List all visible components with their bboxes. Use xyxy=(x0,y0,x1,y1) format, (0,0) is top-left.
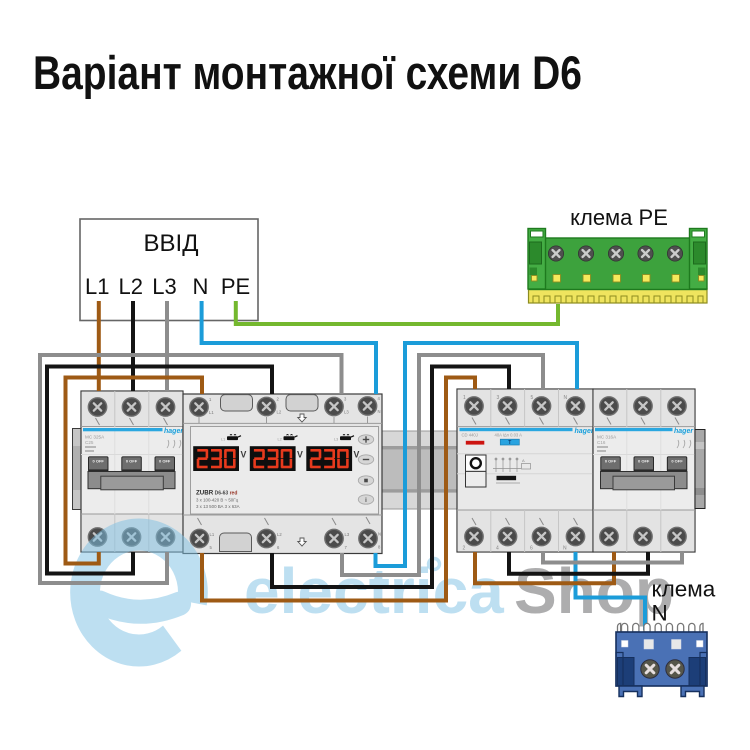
svg-text:L2: L2 xyxy=(118,274,142,299)
svg-text:L2: L2 xyxy=(278,438,282,442)
svg-text:N: N xyxy=(193,274,209,299)
svg-text:hager: hager xyxy=(674,428,694,435)
svg-text:N: N xyxy=(564,395,568,401)
svg-text:L2: L2 xyxy=(277,410,282,415)
svg-text:C16: C16 xyxy=(597,440,606,445)
svg-text:MC 316A: MC 316A xyxy=(597,434,617,439)
svg-text:V: V xyxy=(241,450,247,460)
svg-text:3 x 100-420 В ~ 50Гц: 3 x 100-420 В ~ 50Гц xyxy=(196,498,239,503)
svg-text:клема PE: клема PE xyxy=(570,205,668,230)
svg-text:L3: L3 xyxy=(345,532,350,537)
svg-text:L2: L2 xyxy=(277,532,282,537)
svg-text:L3: L3 xyxy=(334,438,338,442)
svg-text:L1: L1 xyxy=(85,274,109,299)
svg-text:3: 3 xyxy=(497,395,500,401)
svg-text:hager: hager xyxy=(164,428,184,435)
svg-text:hager: hager xyxy=(575,428,595,435)
svg-text:PE: PE xyxy=(221,274,250,299)
svg-text:L3: L3 xyxy=(152,274,176,299)
svg-text:V: V xyxy=(297,450,303,460)
svg-text:N: N xyxy=(652,601,668,626)
svg-text:A: A xyxy=(522,458,525,463)
svg-text:L3: L3 xyxy=(344,410,349,415)
svg-text:ZUBR D6-63 red: ZUBR D6-63 red xyxy=(196,490,237,497)
svg-text:1: 1 xyxy=(463,395,466,401)
svg-text:C25: C25 xyxy=(85,440,94,445)
svg-text:5: 5 xyxy=(531,395,534,401)
svg-text:L1: L1 xyxy=(221,438,225,442)
svg-text:T: T xyxy=(508,440,511,446)
svg-text:40A I∆n 0.03 A: 40A I∆n 0.03 A xyxy=(495,433,523,438)
svg-text:MC 325A: MC 325A xyxy=(85,434,105,439)
svg-text:L1: L1 xyxy=(210,532,215,537)
svg-text:2: 2 xyxy=(463,546,466,552)
svg-text:клема: клема xyxy=(652,577,716,602)
svg-text:N: N xyxy=(378,409,381,414)
svg-text:N: N xyxy=(378,532,381,537)
svg-text:ВВІД: ВВІД xyxy=(144,230,199,257)
svg-text:N: N xyxy=(563,546,567,552)
svg-text:3 x 13 500 ВА 3 x 63А: 3 x 13 500 ВА 3 x 63А xyxy=(196,504,240,509)
svg-text:4: 4 xyxy=(496,546,499,552)
svg-text:L1: L1 xyxy=(209,410,214,415)
svg-text:6: 6 xyxy=(530,546,533,552)
svg-text:CD 440J: CD 440J xyxy=(462,433,478,438)
svg-text:Варіант монтажної схеми D6: Варіант монтажної схеми D6 xyxy=(33,48,582,100)
